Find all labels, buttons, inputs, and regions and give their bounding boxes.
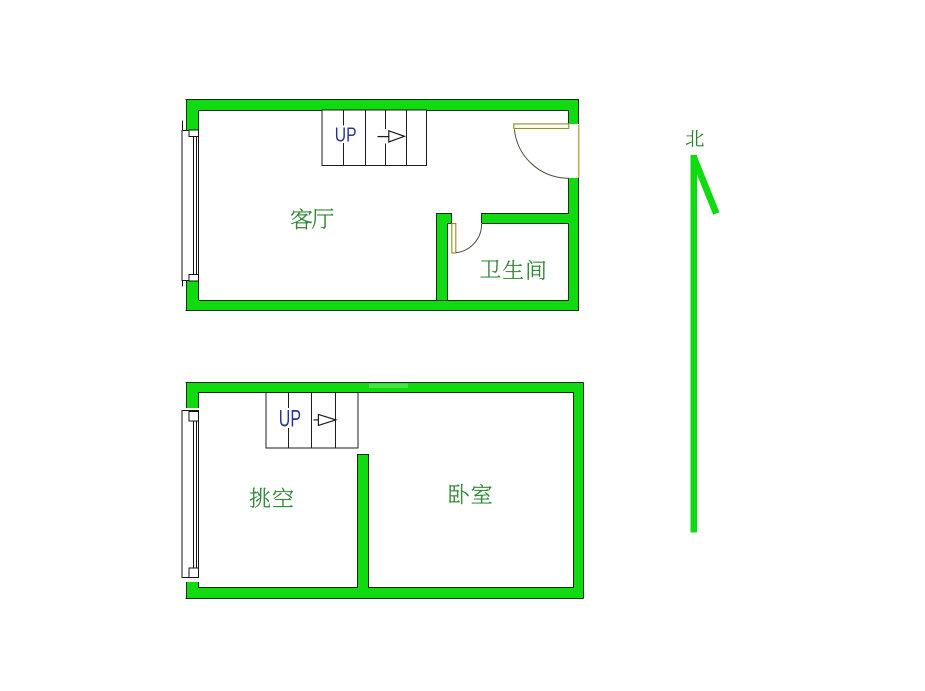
svg-text:UP: UP: [279, 405, 301, 432]
svg-text:UP: UP: [335, 123, 357, 146]
